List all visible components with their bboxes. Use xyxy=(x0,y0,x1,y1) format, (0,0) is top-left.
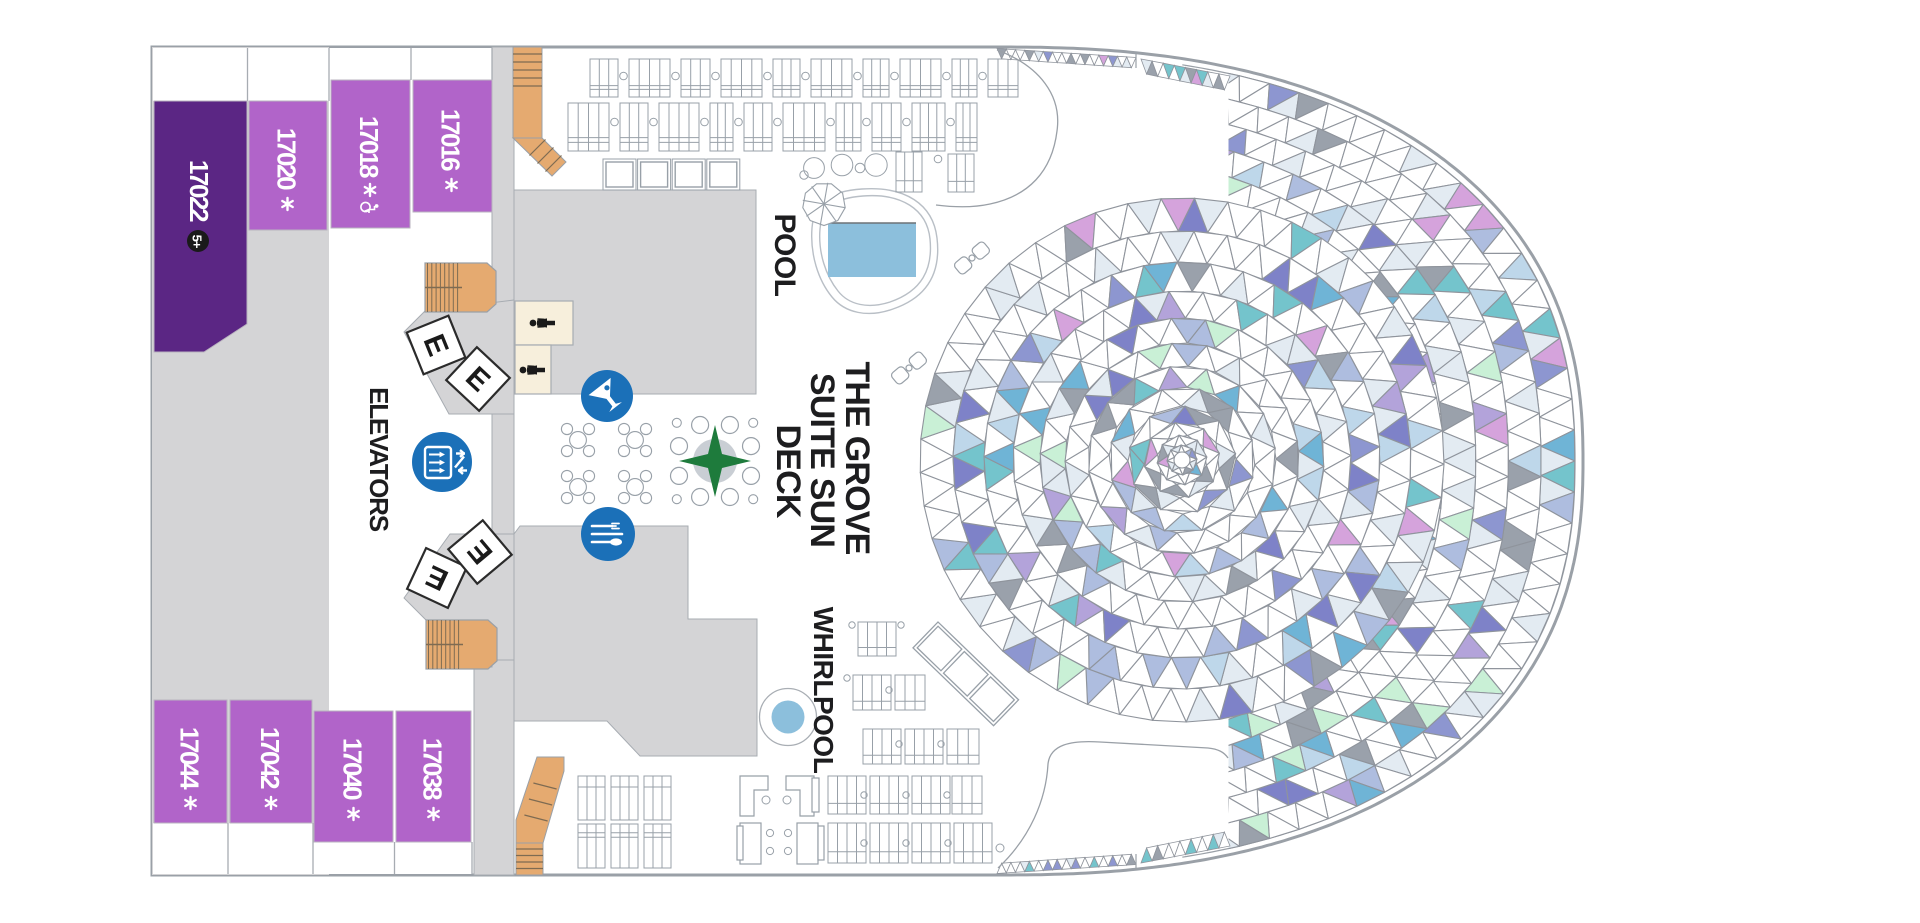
svg-text:POOL: POOL xyxy=(768,213,801,296)
svg-text:17018: 17018 xyxy=(354,116,384,178)
svg-text:DECK: DECK xyxy=(769,424,807,518)
svg-text:THE GROVE: THE GROVE xyxy=(838,361,876,554)
svg-text:17044: 17044 xyxy=(175,727,205,790)
svg-text:5+: 5+ xyxy=(190,235,205,249)
svg-text:ELEVATORS: ELEVATORS xyxy=(364,387,394,532)
svg-text:17022: 17022 xyxy=(184,160,214,222)
svg-text:17042: 17042 xyxy=(255,727,285,789)
svg-text:WHIRLPOOL: WHIRLPOOL xyxy=(808,607,839,774)
svg-text:17020: 17020 xyxy=(272,128,302,190)
svg-text:17016: 17016 xyxy=(436,109,466,171)
svg-text:17040: 17040 xyxy=(338,738,368,800)
svg-text:17038: 17038 xyxy=(418,738,448,800)
svg-text:SUITE SUN: SUITE SUN xyxy=(803,373,841,547)
